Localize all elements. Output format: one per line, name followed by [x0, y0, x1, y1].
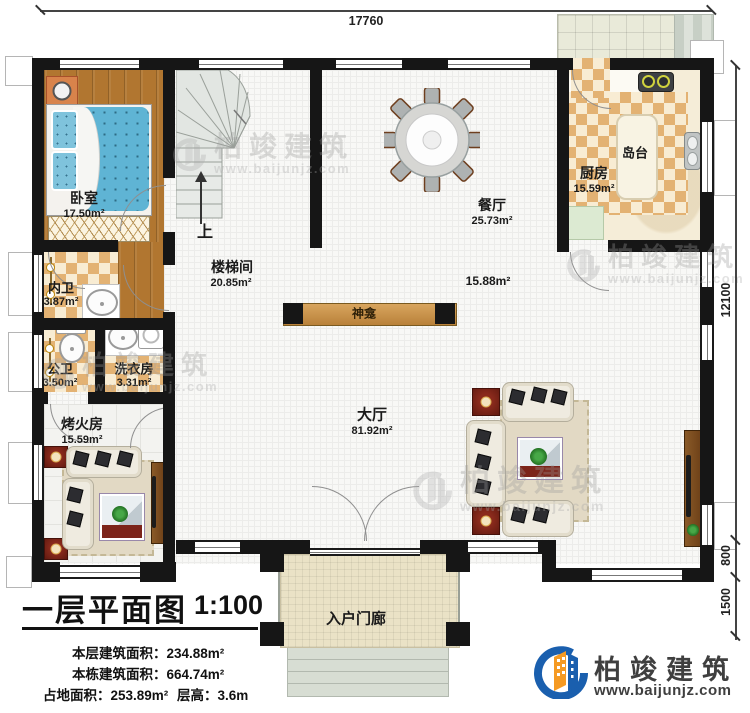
foyer-area-label: 15.88m² [466, 274, 511, 288]
stairs-up-label: 上 [197, 218, 213, 242]
hall-label: 大厅 [357, 404, 387, 425]
window [60, 58, 139, 70]
window [195, 540, 240, 554]
window-sill [8, 252, 34, 316]
window [700, 505, 714, 545]
laundry-label: 洗衣房 [114, 359, 153, 378]
stat1-value: 234.88m² [167, 646, 225, 661]
shrine-cap [283, 303, 303, 324]
hall-area: 81.92m² [352, 425, 393, 437]
title-underline [22, 627, 258, 630]
porch-pillar [446, 622, 470, 646]
kitchen-label: 厨房 [580, 163, 608, 183]
stat3-value: 253.89m² [111, 688, 169, 703]
stove [638, 72, 674, 92]
window [592, 568, 682, 582]
stairwell-label: 楼梯间 [211, 257, 253, 277]
porch-pillar [260, 550, 284, 572]
stat2-label: 本栋建筑面积： [72, 667, 167, 682]
dining-table [384, 88, 480, 192]
side-table [472, 388, 500, 416]
shrine-label: 神龛 [352, 305, 376, 322]
porch-pillar [446, 550, 470, 572]
plant [687, 524, 699, 536]
stairwell-area: 20.85m² [211, 277, 252, 289]
window [700, 122, 714, 192]
plant [112, 506, 128, 522]
shrine-cap [435, 303, 455, 324]
corner-sill [5, 56, 33, 86]
stair-arrow-head [195, 171, 207, 182]
kitchen-area: 15.59m² [574, 183, 615, 195]
window [700, 252, 714, 287]
floor-plan: 17760 12100 800 1500 [0, 0, 750, 713]
porch-label: 入户门廊 [326, 608, 386, 629]
tv [152, 476, 156, 528]
stat3-label: 占地面积： [43, 688, 111, 703]
entry-threshold [310, 548, 420, 556]
fire-room-label: 烤火房 [61, 414, 103, 434]
laundry-area: 3.31m² [117, 377, 152, 389]
right-dimension-height: 12100 [719, 283, 733, 318]
inner-bath-label: 内卫 [48, 278, 74, 297]
top-dimension-label: 17760 [349, 14, 384, 28]
plan-scale: 1:100 [194, 590, 263, 621]
stat2-value: 664.74m² [167, 667, 225, 682]
kitchen-door-mat [566, 206, 604, 240]
island-label: 岛台 [622, 143, 648, 162]
window [468, 540, 538, 554]
company-logo-icon [532, 645, 588, 699]
window-sill [714, 502, 736, 550]
dining-area: 25.73m² [472, 215, 513, 227]
dining-label: 餐厅 [478, 195, 506, 215]
tv [686, 455, 691, 517]
right-dimension-line [735, 65, 737, 640]
window [199, 58, 283, 70]
right-dimension-offset: 800 [719, 545, 733, 566]
window-sill [714, 120, 736, 196]
sink [86, 289, 118, 316]
shower-knob [45, 344, 54, 353]
window [32, 445, 44, 500]
right-dimension-porch: 1500 [719, 588, 733, 616]
window [448, 58, 530, 70]
porch-step [287, 683, 449, 697]
plan-title: 一层平面图 [22, 585, 187, 630]
window [32, 255, 44, 312]
window [60, 565, 140, 579]
window [336, 58, 402, 70]
public-bath-area: 3.50m² [43, 377, 78, 389]
window [700, 325, 714, 360]
bedroom-label: 卧室 [70, 188, 98, 208]
porch-floor [280, 554, 460, 648]
kitchen-sink [684, 132, 701, 170]
stairs [176, 70, 252, 220]
inner-bath-area: 3.87m² [44, 296, 79, 308]
side-table [44, 446, 68, 468]
window-sill [8, 332, 34, 392]
stat1-label: 本层建筑面积： [72, 646, 167, 661]
plant [530, 448, 547, 465]
top-dimension-line [40, 10, 712, 12]
stat4-label: 层高： [177, 688, 218, 703]
fire-room-area: 15.59m² [62, 434, 103, 446]
company-website: www.baijunjz.com [594, 682, 731, 699]
terrace-floor [557, 14, 677, 60]
stat4-value: 3.6m [218, 688, 249, 703]
public-bath-label: 公卫 [47, 359, 73, 378]
side-table [472, 507, 500, 535]
porch-pillar [260, 622, 284, 646]
window-sill [8, 442, 34, 504]
bedroom-area: 17.50m² [64, 208, 105, 220]
nightstand [46, 76, 78, 105]
window-sill [6, 556, 32, 588]
